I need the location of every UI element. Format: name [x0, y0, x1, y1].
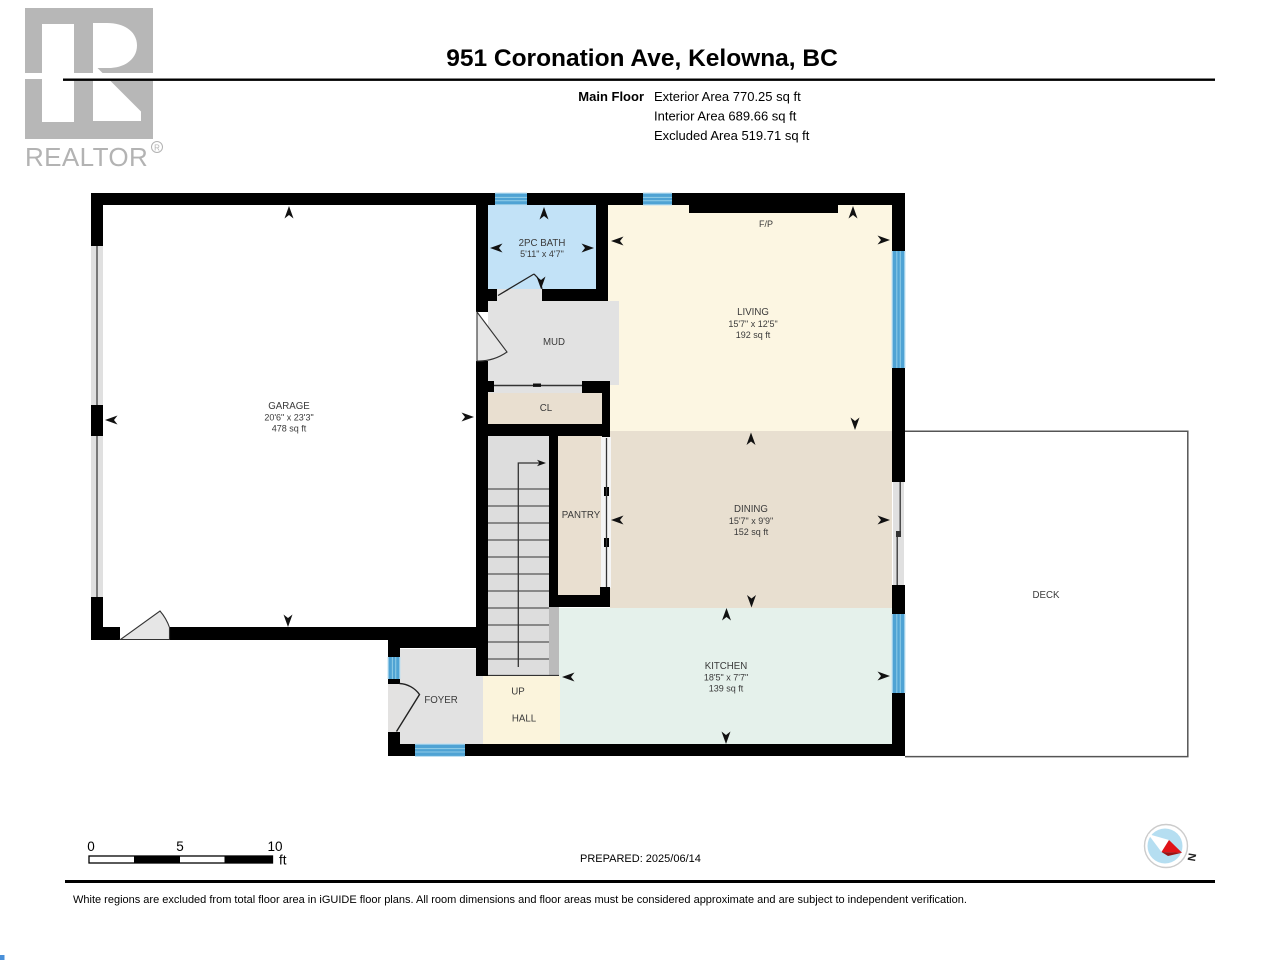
- svg-text:CL: CL: [540, 403, 553, 414]
- svg-text:15'7" x 9'9": 15'7" x 9'9": [729, 516, 773, 526]
- svg-text:REALTOR: REALTOR: [25, 142, 148, 172]
- svg-text:Main Floor: Main Floor: [578, 89, 644, 104]
- svg-text:LIVING: LIVING: [737, 307, 769, 318]
- svg-text:White regions are excluded fro: White regions are excluded from total fl…: [73, 894, 967, 906]
- svg-text:ft: ft: [279, 853, 287, 868]
- svg-text:MUD: MUD: [543, 337, 565, 348]
- svg-text:R: R: [154, 144, 160, 153]
- svg-text:FOYER: FOYER: [424, 695, 457, 706]
- svg-text:UP: UP: [511, 687, 524, 698]
- svg-text:20'6" x 23'3": 20'6" x 23'3": [264, 413, 313, 423]
- svg-text:2PC BATH: 2PC BATH: [519, 238, 566, 249]
- svg-text:478 sq ft: 478 sq ft: [272, 424, 307, 434]
- svg-text:PANTRY: PANTRY: [562, 510, 601, 521]
- svg-text:HALL: HALL: [512, 714, 537, 725]
- svg-text:F/P: F/P: [759, 219, 773, 229]
- svg-text:0: 0: [87, 839, 95, 854]
- svg-text:152 sq ft: 152 sq ft: [734, 527, 769, 537]
- svg-text:5: 5: [176, 839, 184, 854]
- svg-text:192 sq ft: 192 sq ft: [736, 330, 771, 340]
- svg-text:KITCHEN: KITCHEN: [705, 661, 748, 672]
- svg-text:PREPARED: 2025/06/14: PREPARED: 2025/06/14: [580, 853, 701, 865]
- svg-text:5'11" x 4'7": 5'11" x 4'7": [520, 249, 564, 259]
- svg-text:DINING: DINING: [734, 504, 768, 515]
- svg-text:139 sq ft: 139 sq ft: [709, 684, 744, 694]
- svg-text:GARAGE: GARAGE: [268, 401, 310, 412]
- svg-text:18'5" x 7'7": 18'5" x 7'7": [704, 673, 748, 683]
- svg-text:951 Coronation Ave, Kelowna, B: 951 Coronation Ave, Kelowna, BC: [446, 45, 838, 72]
- svg-text:DECK: DECK: [1033, 590, 1060, 601]
- svg-text:Exterior Area 770.25 sq ft: Exterior Area 770.25 sq ft: [654, 89, 801, 104]
- svg-text:Interior Area 689.66 sq ft: Interior Area 689.66 sq ft: [654, 109, 797, 124]
- svg-text:Excluded Area 519.71 sq ft: Excluded Area 519.71 sq ft: [654, 128, 810, 143]
- svg-text:15'7" x 12'5": 15'7" x 12'5": [728, 319, 777, 329]
